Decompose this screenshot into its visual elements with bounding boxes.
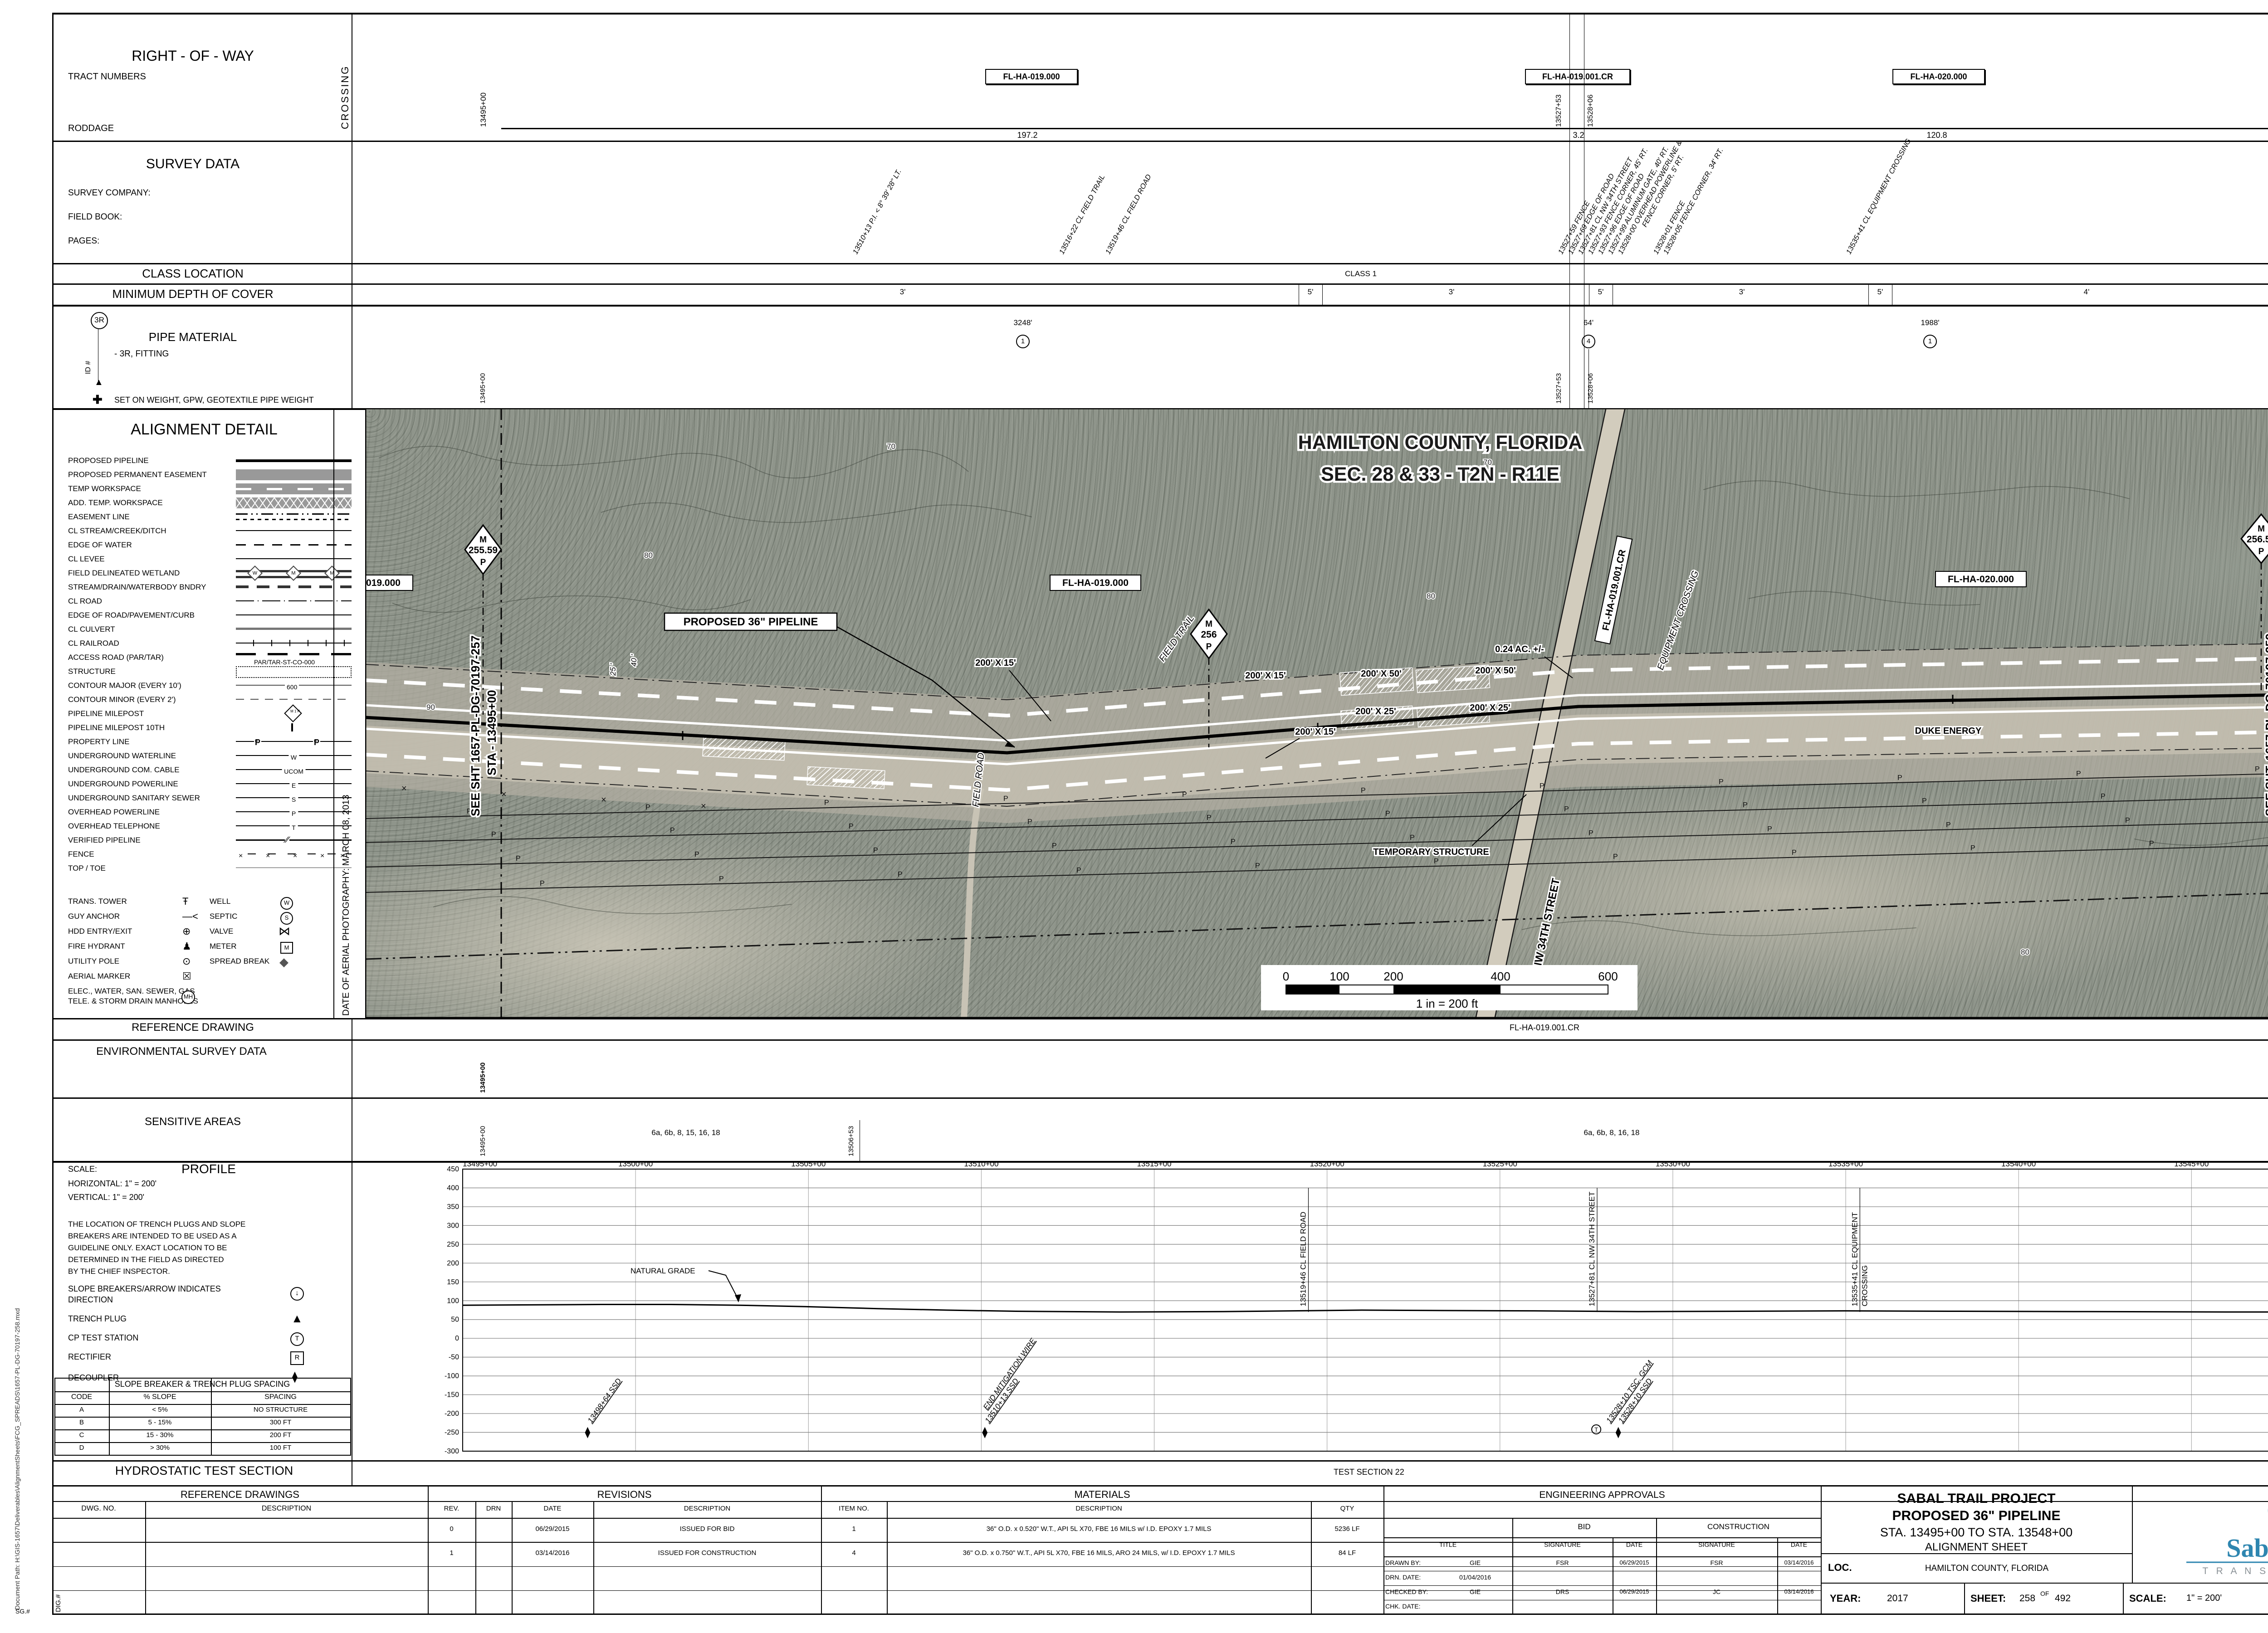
depth-value: 3' [1728,288,1755,297]
table-vline [145,1501,146,1614]
approvals-row-value: 01/04/2016 [1440,1574,1510,1581]
legend-symbol-label: GUY ANCHOR [68,912,120,921]
powerline-letter: P [1052,842,1057,850]
map-title-line2: SEC. 28 & 33 - T2N - R11E [1321,463,1559,485]
table-vline [1383,1485,1384,1614]
powerline-letter: P [898,871,903,878]
rule [52,1018,2268,1019]
table-rule [1383,1556,1821,1557]
spacing-title: SLOPE BREAKER & TRENCH PLUG SPACING [54,1380,350,1389]
svg-text:P: P [2258,547,2264,556]
profile-elev-left: 450 [447,1165,459,1173]
powerline-letter: P [1434,858,1439,865]
profile-station-label: 13495+00 [463,1161,497,1168]
approvals-cell: 03/14/2016 [1779,1588,1819,1595]
svg-text:FL-HA-020.000: FL-HA-020.000 [1948,574,2014,585]
powerline-letter: P [1564,805,1569,813]
svg-text:70: 70 [887,442,895,451]
pipe-id-tag: 3R [91,312,108,329]
legend-item: CONTOUR MAJOR (EVERY 10')600 [68,678,352,692]
legend-item: OVERHEAD POWERLINEP [68,805,352,819]
profile-legend-label2: DIRECTION [68,1295,113,1305]
survey-company-label: SURVEY COMPANY: [68,188,151,198]
weight-glyph: ✚ [93,393,103,407]
legend-item-label: PROPOSED PIPELINE [68,456,149,465]
decoupler-symbol: ⧫ [585,1426,590,1438]
tag-box-020: FL-HA-020.000 [1936,571,2026,587]
svg-text:200' X 15': 200' X 15' [1295,727,1336,737]
legend-symbol-icon: Ŧ [182,896,188,907]
revisions-col-header: DATE [513,1505,591,1512]
spacing-cell: 15 - 30% [109,1431,211,1439]
rule [52,141,2268,142]
tract-numbers-label: TRACT NUMBERS [68,72,146,82]
svg-text:TEMPORARY STRUCTURE: TEMPORARY STRUCTURE [1373,847,1489,857]
depth-divider [1299,284,1299,305]
loc-value: HAMILTON COUNTY, FLORIDA [1869,1564,2105,1574]
road-line [1584,13,1584,408]
sensitive-value-2: 6a, 6b, 8, 16, 18 [1521,1128,1702,1137]
svg-text:80: 80 [1427,592,1435,600]
powerline-letter: P [1589,829,1593,837]
svg-text:80: 80 [2021,948,2029,956]
legend-item-label: CL CULVERT [68,625,115,634]
logo-sub: T R A N S M I S S I O N [2202,1566,2268,1576]
table-vline [512,1501,513,1614]
legend-symbol-icon: S [280,912,293,925]
approvals-cell: JC [1658,1588,1775,1595]
svg-text:13498+64 SSD: 13498+64 SSD [586,1377,623,1425]
materials-cell: 84 LF [1313,1549,1382,1557]
legend-item: VERIFIED PIPELINE∕∕ [68,833,352,847]
legend-item: TEMP WORKSPACE [68,482,352,496]
sensitive-station-left: 13495+00 [479,1107,487,1156]
profile-station-label: 13525+00 [1483,1161,1517,1168]
svg-text:90: 90 [426,703,435,712]
revisions-cell: 06/29/2015 [513,1525,591,1533]
materials-cell: 1 [823,1525,885,1533]
approvals-row-label: DRAWN BY: [1385,1559,1441,1566]
legend-item-label: VERIFIED PIPELINE [68,836,141,844]
table-rule [1383,1600,1821,1600]
spacing-rule [54,1429,350,1430]
powerline-letter: P [1027,818,1032,826]
roddage-rule [501,128,2268,129]
decoupler-symbol: ⧫ [982,1426,987,1438]
divider [2123,1583,2124,1614]
hydro-label: HYDROSTATIC TEST SECTION [68,1464,340,1478]
svg-text:×: × [401,784,407,794]
crossing-tag-3: FL-HA-020.000 [1892,69,1985,84]
revisions-col-header: REV. [430,1505,474,1512]
powerline-letter: P [491,831,496,838]
profile-vertical: VERTICAL: 1" = 200' [68,1193,144,1202]
profile-note-line: GUIDELINE ONLY. EXACT LOCATION TO BE [68,1243,227,1253]
profile-crossing-label: 13527+81 CL NW 34TH STREET [1588,1192,1596,1306]
depth-divider [1589,284,1589,305]
table-vline [1777,1537,1778,1614]
pipe-station-left: 13495+00 [479,358,487,404]
rule [1821,1553,2132,1554]
ws50-label: 200' X 50' [1361,669,1402,679]
approvals-cell: 03/14/2016 [1779,1559,1819,1566]
divider [1964,1583,1965,1614]
spacing-rule [54,1378,350,1379]
powerline-letter: P [1231,838,1236,846]
depth-value: 3' [1438,288,1465,297]
legend-symbol-icon: —< [182,911,198,922]
rule [1821,1583,2268,1584]
depth-value: 5' [1587,288,1614,297]
environmental-label: ENVIRONMENTAL SURVEY DATA [68,1045,295,1058]
approvals-cell: FSR [1658,1559,1775,1566]
station-left-top: 13495+00 [479,68,488,127]
profile-station-label: 13500+00 [618,1161,653,1168]
spacing-cell: A [54,1406,109,1414]
street-label: NW 34TH STREET [1531,877,1562,971]
svg-text:200' X 15': 200' X 15' [975,658,1016,668]
legend-item-label: OVERHEAD TELEPHONE [68,822,160,830]
powerline-letter: P [540,880,545,887]
revisions-cell: 03/14/2016 [513,1549,591,1557]
spacing-rule [54,1404,350,1405]
table-rule [1383,1571,1821,1571]
legend-item-label: CL STREAM/CREEK/DITCH [68,526,166,535]
powerline-letter: P [1946,821,1951,829]
tag-box-019cr: FL-HA-019.001.CR [1595,536,1632,644]
profile-elev-left: -150 [445,1391,459,1399]
project-line4: ALIGNMENT SHEET [1825,1541,2127,1554]
materials-title: MATERIALS [823,1489,1382,1501]
survey-fieldbook-label: FIELD BOOK: [68,212,122,222]
profile-elev-left: -250 [445,1429,459,1437]
legend-symbol-label: SEPTIC [210,912,237,921]
legend-symbol-label2: TELE. & STORM DRAIN MANHOLES [68,997,198,1006]
powerline-letter: P [670,827,675,834]
legend-symbol-label: ELEC., WATER, SAN. SEWER, GAS [68,987,195,996]
legend-item-label: TEMP WORKSPACE [68,484,141,493]
sheet-of: OF [2040,1590,2049,1597]
materials-cell: 36" O.D. x 0.750" W.T., API 5L X70, FBE … [889,1549,1309,1557]
approvals-row-label: CHK. DATE: [1385,1603,1441,1610]
depth-value: 3' [889,288,916,297]
profile-station-label: 13530+00 [1656,1161,1690,1168]
profile-crossing-label: 13535+41 CL EQUIPMENT [1850,1212,1859,1306]
materials-col-header: ITEM NO. [823,1505,885,1512]
materials-col-header: DESCRIPTION [889,1505,1309,1512]
powerline-letter: P [1970,844,1975,852]
rectifier-icon: R [290,1351,304,1365]
powerline-letter: P [824,799,829,807]
powerline-letter: P [516,855,521,863]
sabal-trail-logo: Sabal Trail T R A N S M I S S I O N SM [2132,1485,2268,1583]
legend-item: CONTOUR MINOR (EVERY 2') [68,692,352,707]
approvals-col-header: SIGNATURE [1514,1541,1611,1548]
powerline-letter: P [1385,810,1390,818]
sheet-no: 258 [2019,1593,2035,1604]
legend-item-label: TOP / TOE [68,864,106,873]
project-line2: PROPOSED 36" PIPELINE [1825,1508,2127,1524]
depth-value: 5' [1867,288,1894,297]
trench-plug-icon: ▲ [291,1311,303,1326]
pipe-seg-length: 3248' [1000,318,1046,327]
legend-symbol-icon: ⊙ [182,955,191,967]
svg-text:0: 0 [1283,970,1289,983]
pipe-seg-id: 1 [1923,335,1937,348]
profile-station-label: 13510+00 [964,1161,998,1168]
survey-callout: 13510+13 P.I. < 8° 39' 28" LT. [851,168,904,256]
svg-text:256.59: 256.59 [2247,534,2268,545]
depth-value: 4' [2073,288,2100,297]
profile-station-label: 13540+00 [2001,1161,2036,1168]
approvals-cell: 06/29/2015 [1614,1588,1654,1595]
legend-symbol-label: HDD ENTRY/EXIT [68,927,132,936]
legend-item: UNDERGROUND SANITARY SEWERS [68,791,352,805]
powerline-letter: P [2101,793,2106,800]
legend-item-label: EDGE OF WATER [68,541,132,549]
legend-symbol-icon: ♟ [182,941,191,952]
field-trail-label: FIELD TRAIL [1157,614,1196,663]
sensitive-tick [860,1120,860,1161]
legend-item: PIPELINE MILEPOSTM 1 P [68,707,352,721]
profile-legend-label: SLOPE BREAKERS/ARROW INDICATES [68,1284,221,1294]
spacing-rule [54,1391,350,1392]
legend-symbol-label: METER [210,942,237,951]
profile-station-label: 13505+00 [791,1161,826,1168]
legend-title: ALIGNMENT DETAIL [68,421,340,439]
survey-callout: 13535+41 CL EQUIPMENT CROSSING [1844,137,1914,256]
legend-item-label: OVERHEAD POWERLINE [68,808,160,816]
legend-item-label: ADD. TEMP. WORKSPACE [68,498,163,507]
boundary-line [365,889,2268,959]
sg-number: SG.# [15,1608,30,1615]
table-rule [1383,1585,1821,1586]
approvals-title: ENGINEERING APPROVALS [1385,1490,1819,1501]
spacing-cell: > 30% [109,1444,211,1452]
profile-station-label: 13545+00 [2174,1161,2209,1168]
row-title: RIGHT - OF - WAY [91,48,295,64]
dig-number: DIG.# [54,1567,62,1612]
sensitive-station-mid: 13506+53 [847,1107,855,1156]
survey-callout: 13516+22 CL FIELD TRAIL [1057,173,1108,256]
rule [52,1039,2268,1041]
spacing-cell: < 5% [109,1406,211,1414]
sensitive-value-1: 6a, 6b, 8, 15, 16, 18 [595,1128,777,1137]
approvals-row-label: CHECKED BY: [1385,1588,1441,1595]
legend-item-label: PROPOSED PERMANENT EASEMENT [68,470,207,479]
legend-item-label: CL RAILROAD [68,639,119,648]
profile-elev-left: -300 [445,1448,459,1455]
legend-item: ADD. TEMP. WORKSPACE [68,496,352,510]
legend-item-label: PROPERTY LINE [68,737,129,746]
depth-divider [1892,284,1892,305]
spacing-vline [350,1378,351,1456]
pipe-seg-length: 64' [1566,318,1611,327]
svg-text:0.24 AC. +/-: 0.24 AC. +/- [1495,644,1544,654]
revisions-cell: 1 [430,1549,474,1557]
svg-text:256: 256 [1201,629,1217,640]
approvals-row-label: DRN. DATE: [1385,1574,1441,1581]
document-path: Document Path: H:\GIS-1657\Deliverables\… [14,1152,21,1610]
table-vline [887,1501,888,1614]
spacing-rule [54,1442,350,1443]
manhole-icon: MH [181,990,195,1004]
svg-text:×: × [501,790,507,799]
legend-item-label: STRUCTURE [68,667,116,676]
legend-item: EASEMENT LINE [68,510,352,524]
profile-scale-label: SCALE: [68,1165,97,1174]
profile-note-line: THE LOCATION OF TRENCH PLUGS AND SLOPE [68,1220,245,1229]
profile-elev-left: 400 [447,1184,459,1192]
profile-elev-left: 200 [447,1259,459,1267]
approvals-row-value: GIE [1440,1559,1510,1566]
profile-elev-left: -100 [445,1372,459,1380]
legend-divider [333,408,334,1018]
pipe-id-line [98,328,98,381]
legend-item: EDGE OF ROAD/PAVEMENT/CURB [68,608,352,622]
powerline-letter: P [1410,834,1415,842]
spacing-rule [54,1455,350,1456]
legend-item: PROPOSED PIPELINE [68,453,352,468]
legend-item-label: PIPELINE MILEPOST [68,709,144,718]
approvals-col-header: DATE [1779,1541,1819,1548]
crossing-tag-1: FL-HA-019.000 [985,69,1078,84]
profile-station-label: 13515+00 [1137,1161,1171,1168]
svg-text:M: M [2258,524,2265,534]
legend-item: UNDERGROUND WATERLINEW [68,749,352,763]
profile-station-label: 13535+00 [1828,1161,1863,1168]
natural-grade-line [463,1305,2268,1312]
profile-elev-left: 300 [447,1222,459,1229]
sheet-label: SHEET: [1970,1593,2006,1604]
dim-25: 25 ' [609,663,617,676]
legend-item: STREAM/DRAIN/WATERBODY BNDRY [68,580,352,594]
pipe-material-label: PIPE MATERIAL [113,330,272,344]
legend-item-label: CL ROAD [68,597,102,605]
svg-text:200: 200 [1383,970,1403,983]
ws50-label: 200' X 50' [1475,666,1516,676]
legend-item-label: UNDERGROUND SANITARY SEWER [68,794,200,802]
slope-breaker-icon: ↓ [290,1287,304,1301]
profile-title: PROFILE [141,1162,277,1176]
survey-pages-label: PAGES: [68,236,99,246]
profile-legend-label: TRENCH PLUG [68,1314,127,1324]
depth-label: MINIMUM DEPTH OF COVER [91,287,295,301]
cp-test-icon: T [290,1332,304,1346]
legend-item-label: ACCESS ROAD (PAR/TAR) [68,653,164,662]
meter-icon: M [280,942,293,954]
legend-item: PROPOSED PERMANENT EASEMENT [68,468,352,482]
legend-item: CL ROAD [68,594,352,608]
svg-text:255.59: 255.59 [469,545,498,556]
legend-item: UNDERGROUND POWERLINEE [68,777,352,791]
roddage-label: RODDAGE [68,123,114,134]
profile-horizontal: HORIZONTAL: 1" = 200' [68,1179,156,1189]
ws25-label: 200' X 25' [1355,707,1396,717]
powerline-letter: P [2255,765,2260,773]
table-rule [1383,1537,1821,1538]
spread-break-icon: ◆ [279,955,288,969]
legend-item: CL LEVEE [68,552,352,566]
table-rule [1512,1518,1821,1519]
table-vline [428,1485,429,1614]
materials-cell: 4 [823,1549,885,1557]
approvals-cell: DRS [1514,1588,1611,1595]
powerline-letter: P [1076,867,1081,874]
powerline-letter: P [1922,797,1927,805]
rule [52,1460,2268,1462]
profile-station-label: 13520+00 [1310,1161,1344,1168]
profile-elev-left: 0 [455,1335,459,1342]
rule [52,305,2268,307]
svg-text:M: M [479,535,487,545]
reference-drawing-label: REFERENCE DRAWING [91,1021,295,1034]
rule [52,283,2268,285]
dim-40: 40 ' [630,654,638,667]
legend-item: FENCE××××× [68,847,352,861]
legend-item-label: UNDERGROUND WATERLINE [68,751,176,760]
legend-item: UNDERGROUND COM. CABLEUCOM [68,763,352,777]
pipe-fitting-note: - 3R, FITTING [114,349,169,359]
legend-item-label: PIPELINE MILEPOST 10TH [68,723,165,732]
profile-elev-left: 50 [451,1316,459,1324]
rule [52,1097,2268,1099]
profile-note-line: DETERMINED IN THE FIELD AS DIRECTED [68,1255,224,1264]
svg-text:80: 80 [644,551,653,560]
svg-text:1 in = 200 ft: 1 in = 200 ft [1416,997,1478,1010]
profile-note-line: BREAKERS ARE INTENDED TO BE USED AS A [68,1232,237,1241]
table-vline [821,1485,822,1614]
spacing-cell: 5 - 15% [109,1419,211,1426]
revisions-col-header: DRN [477,1505,510,1512]
powerline-letter: P [1743,801,1748,809]
rule [52,263,2268,264]
hydro-value: TEST SECTION 22 [1334,1467,1404,1477]
profile-elev-left: -200 [445,1410,459,1418]
profile-elev-left: 100 [447,1297,459,1305]
profile-crossing-label2: CROSSING [1860,1265,1869,1306]
profile-diagonal-annotation: 13510+13 SSDEND MITIGATION WIRE [976,1336,1045,1425]
spacing-cell: 200 FT [211,1431,350,1439]
cp-test-letter: T [1594,1426,1598,1433]
powerline-letter: P [1540,782,1545,790]
table-vline [593,1501,594,1614]
svg-text:P: P [480,558,486,567]
legend-item: CL RAILROAD [68,636,352,650]
divider [352,13,352,408]
depth-value: 5' [1297,288,1324,297]
legend-symbol-label: UTILITY POLE [68,957,119,966]
legend-item-label: EASEMENT LINE [68,512,130,521]
legend-item: CL CULVERT [68,622,352,636]
pipe-seg-length: 1988' [1907,318,1953,327]
approvals-cell: 06/29/2015 [1614,1559,1654,1566]
depth-divider [1613,284,1613,305]
pipe-weight-note: SET ON WEIGHT, GPW, GEOTEXTILE PIPE WEIG… [114,395,314,405]
svg-text:70: 70 [1483,458,1492,467]
table-vline [1311,1501,1312,1614]
sheet-total: 492 [2055,1593,2071,1604]
legend-symbol-icon: ⊕ [182,926,191,937]
spacing-cell: 100 FT [211,1444,350,1452]
approvals-col-header: TITLE [1385,1541,1510,1548]
ws25-label: 200' X 25' [1470,703,1510,713]
tag-box-left-cut: FL-HA-019.000 [365,575,413,590]
divider [1821,1485,1822,1614]
profile-note-line: BY THE CHIEF INSPECTOR. [68,1267,170,1276]
approvals-col-header: SIGNATURE [1658,1541,1775,1548]
powerline-letter: P [1255,862,1260,870]
